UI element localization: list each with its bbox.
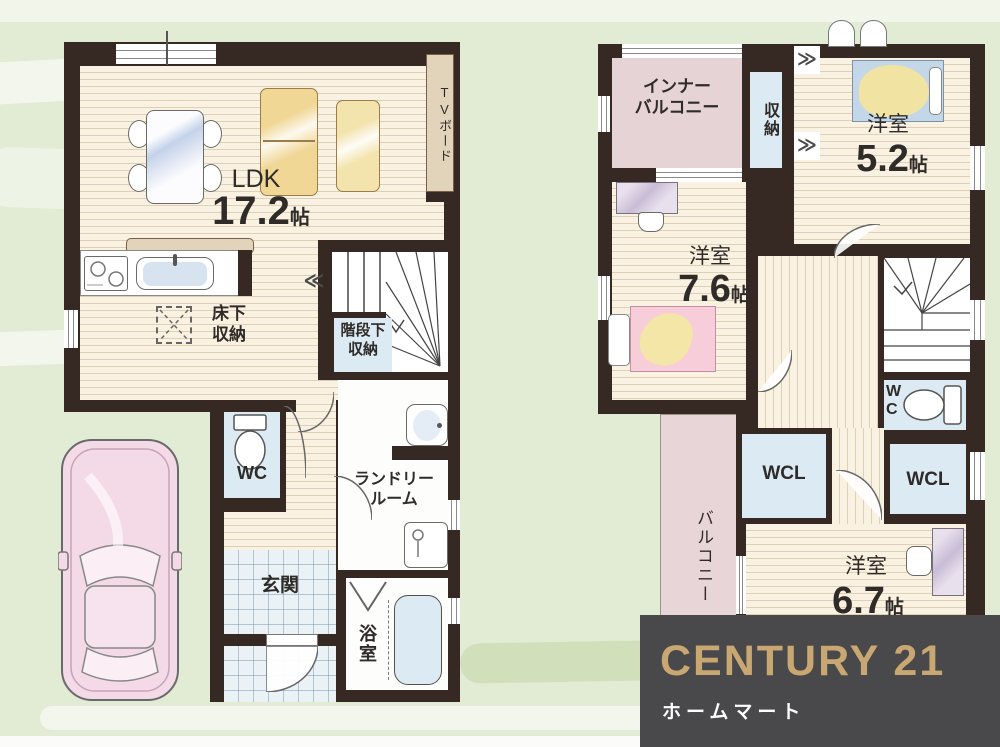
bed-76-blanket <box>634 306 698 373</box>
tv-board-label: TVボード <box>428 62 452 186</box>
desk-67-chair <box>906 546 932 576</box>
inner-balcony-label: インナー バルコニー <box>614 76 740 119</box>
closet-door-icon: ≫ <box>794 46 820 74</box>
bedroom-76-size: 7.6帖 <box>654 266 774 314</box>
stair-storage-door-icon: ≪ <box>300 266 328 296</box>
century21-brand-text: CENTURY 21 <box>660 637 945 686</box>
wc2-label: WC <box>886 383 902 420</box>
kitchen-sink <box>136 257 214 290</box>
bedroom-52-size: 5.2帖 <box>832 136 952 184</box>
bedroom-67-label: 洋室 <box>830 554 902 580</box>
laundry-sink <box>406 404 448 446</box>
bathtub-dash-line <box>388 600 389 680</box>
bedroom-52-door-arc <box>834 224 880 258</box>
bay-window-tab <box>860 20 887 47</box>
bathtub <box>394 595 442 685</box>
desk-76-chair <box>638 212 664 232</box>
background-streak <box>0 0 1000 22</box>
bedroom-76-top-window <box>656 168 742 182</box>
toilet2-icon <box>900 384 964 426</box>
homemart-subtitle-text: ホームマート <box>662 697 805 724</box>
ottoman-sofa <box>336 100 380 192</box>
laundry-right-window <box>448 500 460 530</box>
entrance-door-arc <box>266 646 318 692</box>
tv-board-end-wall <box>426 192 454 202</box>
bed-52-blanket <box>859 65 929 117</box>
floor-storage-label: 床下 収納 <box>194 303 264 346</box>
stove <box>84 256 128 291</box>
desk-76 <box>616 182 678 214</box>
ldk-window-tick <box>166 31 168 65</box>
bed-76 <box>630 306 716 372</box>
century21-logo-panel: CENTURY 21 ホームマート <box>640 615 1000 747</box>
washing-machine <box>404 522 448 568</box>
bed-76-headboard <box>608 314 630 366</box>
sofa-cushion-line <box>263 140 315 142</box>
bay-window-tab <box>828 20 855 47</box>
floorplan-canvas: TVボード LDK 17.2帖 床下 収納 <box>0 0 1000 747</box>
desk-67 <box>932 528 964 596</box>
bedroom-52-label: 洋室 <box>856 112 920 138</box>
wc-label: WC <box>224 462 280 485</box>
wcl-right-window <box>970 452 985 500</box>
balcony-label: バルコニー <box>686 498 714 614</box>
ldk-left-window <box>64 310 78 348</box>
bath-right-window <box>448 598 460 624</box>
wcl-right-label: WCL <box>890 468 966 492</box>
bedroom-76-left-window <box>598 276 610 320</box>
entrance-door-leaf <box>266 634 318 646</box>
corridor-door-arc <box>836 470 882 520</box>
stairs-2f <box>884 258 970 372</box>
faucet-icon <box>173 254 177 266</box>
inner-balcony-railing <box>622 44 742 58</box>
ldk-size-label: 17.2帖 <box>186 186 336 236</box>
closet-label: 収納 <box>753 84 779 156</box>
wcl-left-label: WCL <box>742 462 826 486</box>
corridor-floor <box>758 256 878 428</box>
wc-door-arc <box>284 406 306 478</box>
bedroom-76-door-arc <box>758 350 792 392</box>
bedroom-52-right-window <box>970 146 985 190</box>
stair-storage-label: 階段下 収納 <box>334 322 392 360</box>
hall-floor-wide <box>224 512 336 550</box>
inner-balcony-left-window <box>598 96 610 132</box>
kitchen-end-wall <box>238 250 252 296</box>
floor-storage-hatch <box>156 306 192 344</box>
laundry-label: ランドリー ルーム <box>342 470 446 510</box>
bed-52-pillow <box>929 67 942 115</box>
bath-folding-door-icon <box>348 580 388 614</box>
balcony-window <box>736 556 746 614</box>
bathroom-label: 浴室 <box>352 612 378 676</box>
entrance-label: 玄関 <box>224 574 336 598</box>
closet-door-icon: ≫ <box>794 132 820 160</box>
laundry-faucet-icon <box>437 423 442 428</box>
ldk-size-unit: 帖 <box>290 207 310 229</box>
car <box>58 436 182 704</box>
ldk-size-value: 17.2 <box>212 189 290 233</box>
stairs-right-window <box>970 300 985 340</box>
laundry-partition-wall <box>392 446 448 460</box>
